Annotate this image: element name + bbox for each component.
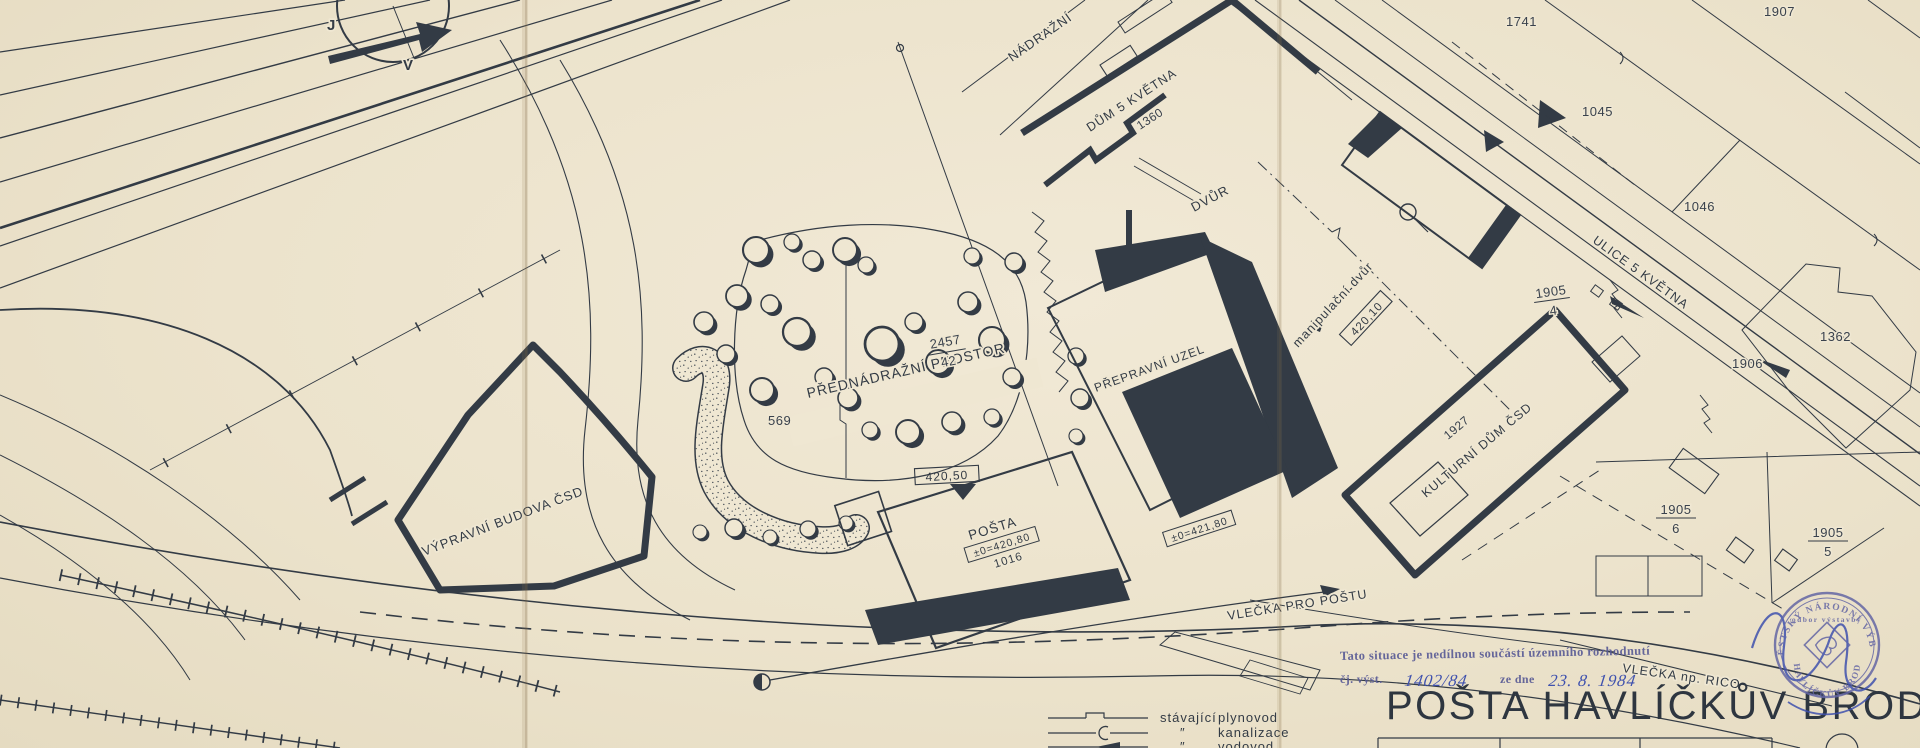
track-bumper (330, 478, 365, 500)
culture-house-year: 1927 (1441, 413, 1472, 442)
street-5-kvetna: ULICE 5 KVĚTNA (1226, 0, 1920, 506)
svg-text:420,50: 420,50 (925, 468, 968, 484)
legend-gas: plynovod (1218, 710, 1278, 725)
parcels-north-east: 1741 1907 1045 1046 1362 1906 (1452, 0, 1920, 448)
parcel-1362-boundary (1742, 264, 1916, 448)
track-bumper (352, 502, 387, 524)
svg-text:2457: 2457 (929, 332, 962, 352)
courtyard-label: DVŮR (1188, 182, 1231, 214)
decision-stamp-text: Tato situace je nedílnou součástí územní… (1340, 644, 1650, 663)
compass-label-east: V (403, 57, 414, 74)
parcel-1362: 1362 (1820, 329, 1851, 344)
legend-row-gas: stávající plynovod (1048, 710, 1278, 725)
parcel-1907: 1907 (1764, 4, 1795, 19)
svg-text:4: 4 (1549, 302, 1559, 318)
svg-text:1905: 1905 (1813, 525, 1844, 540)
legend-row-water: ″ vodovod (1048, 739, 1274, 748)
site-plan-drawing: J V (0, 0, 1920, 748)
parcel-1906: 1906 (1732, 356, 1763, 371)
water-line-symbol (1096, 742, 1120, 748)
station-building-label: VÝPRAVNÍ BUDOVA ČSD (420, 483, 586, 559)
nadrazni-street-label: NÁDRAŽNÍ (1005, 9, 1075, 64)
parcel-1046: 1046 (1684, 199, 1715, 214)
post-office-labels: POŠTA ±0=420,80 1016 (959, 509, 1044, 577)
svg-text:1905: 1905 (1661, 502, 1692, 517)
parcel-569: 569 (768, 413, 791, 428)
legend-ditto-2: ″ (1180, 739, 1186, 748)
compass-label-south: J (327, 17, 336, 34)
sewer-line-symbol (1099, 727, 1108, 740)
handling-yard-label: manipulační dvůr (1290, 259, 1376, 350)
parcel-1905-6: 1905 6 (1656, 502, 1696, 536)
railway-tracks (0, 0, 790, 680)
gas-line-symbol (1048, 713, 1148, 718)
north-arrow-icon (328, 22, 452, 64)
parcel-1741: 1741 (1506, 14, 1537, 29)
svg-text:42: 42 (940, 353, 958, 370)
parcel-1045: 1045 (1582, 104, 1613, 119)
park-trees (693, 234, 1092, 546)
hub-elevation-box: ±0=421,80 (1163, 510, 1236, 547)
compass-rose: J V (327, 0, 452, 74)
forecourt-park: PŘEDNÁDRAŽNÍ PROSTOR 569 2457 42 420,50 (686, 42, 1092, 546)
post-siding-label: VLEČKA PRO POŠTU (1226, 586, 1368, 623)
culture-house: 1927 KULTURNÍ DŮM ČSD 1905 4 (1345, 282, 1640, 575)
legend-prefix: stávající (1160, 710, 1217, 725)
boundary-arrow-icon (1484, 130, 1504, 152)
legend-ditto-1: ″ (1180, 725, 1186, 740)
svg-text:6: 6 (1672, 521, 1680, 536)
north-block: NÁDRAŽNÍ DŮM 5 KVĚTNA 1360 DVŮR manipula… (962, 0, 1518, 418)
parcel-1905-5: 1905 5 (1808, 525, 1848, 559)
ref-label: čj. výst. (1340, 672, 1383, 686)
post-complex: PŘEPRAVNÍ UZEL POŠTA ±0=420,80 1016 ±0=4… (835, 212, 1369, 694)
legend-row-sewer: ″ kanalizace (1048, 725, 1289, 740)
legend-water: vodovod (1218, 739, 1274, 748)
legend: stávající plynovod ″ kanalizace ″ vodovo… (1048, 710, 1289, 748)
parcel-1905-4: 1905 4 (1532, 282, 1572, 321)
site-plan-sheet: J V (0, 0, 1920, 748)
entrance-marker-icon (950, 484, 976, 500)
svg-text:5: 5 (1824, 544, 1832, 559)
svg-text:420,10: 420,10 (1349, 300, 1386, 338)
street-5-kvetna-label: ULICE 5 KVĚTNA (1590, 232, 1692, 312)
house-5-kvetna-label: DŮM 5 KVĚTNA (1083, 65, 1179, 134)
